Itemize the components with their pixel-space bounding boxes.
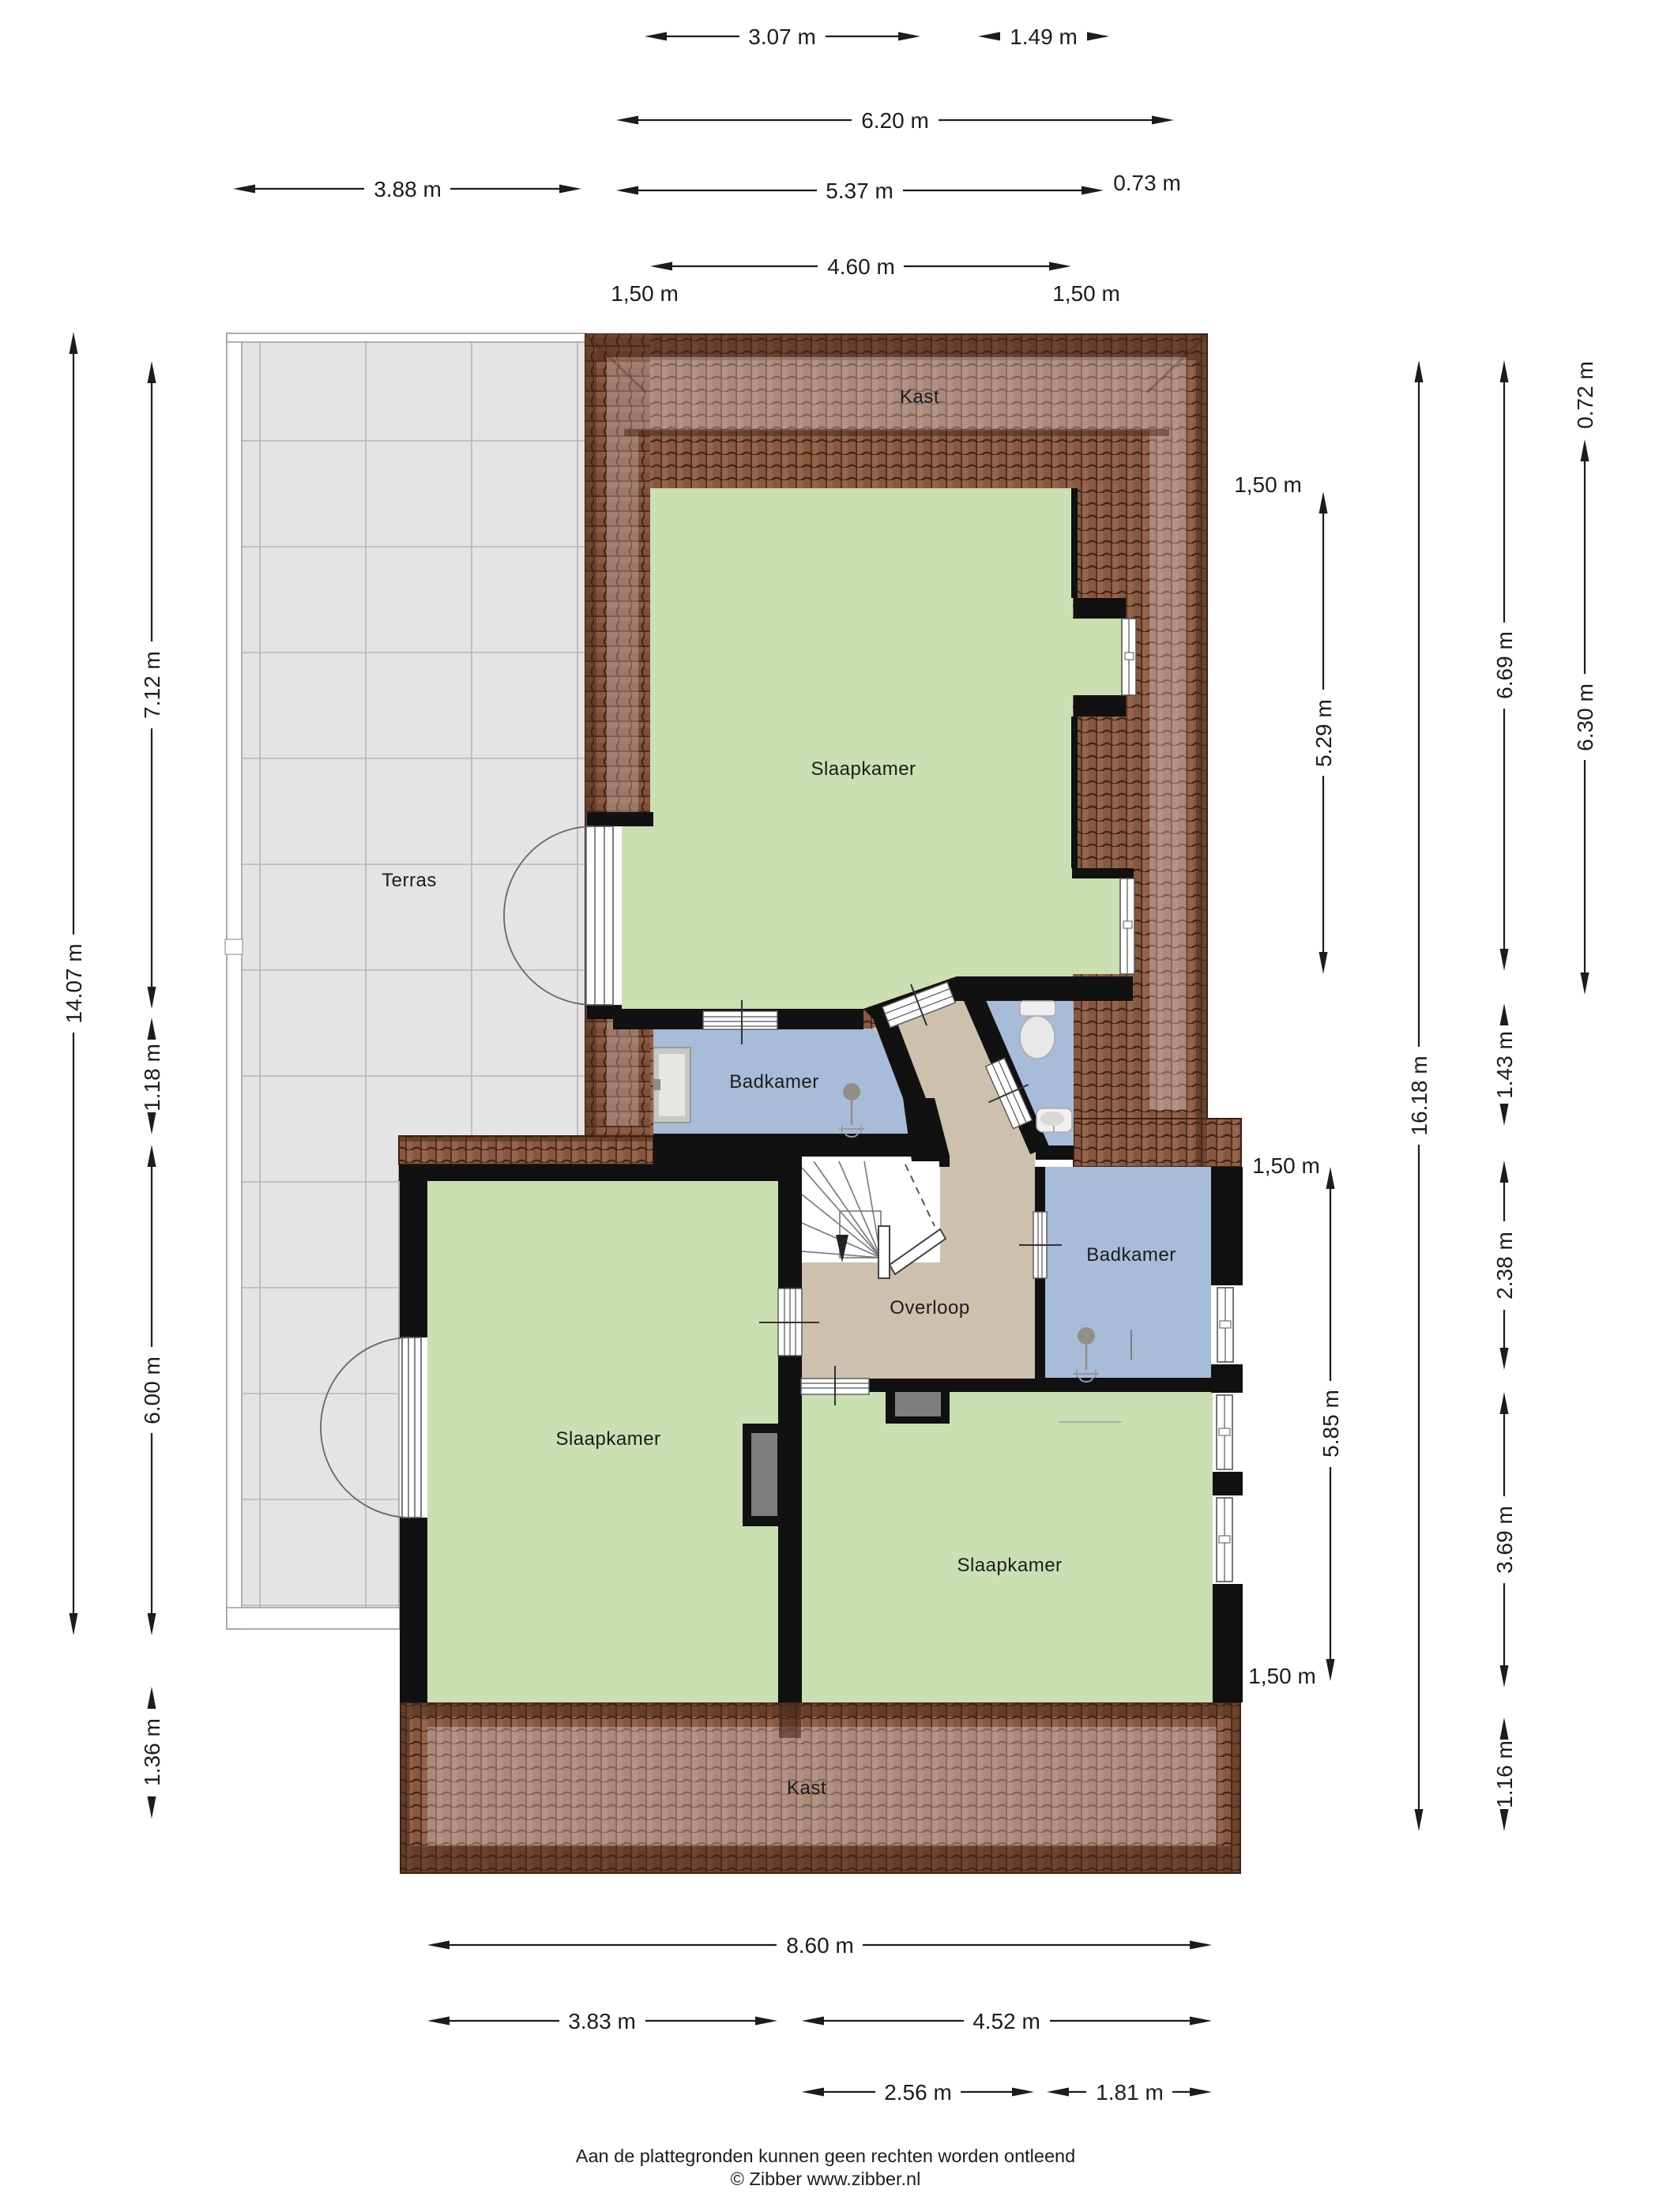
svg-text:Terras: Terras <box>382 870 437 891</box>
svg-text:Kast: Kast <box>787 1777 826 1799</box>
svg-text:1,50 m: 1,50 m <box>1248 1664 1316 1688</box>
svg-text:Badkamer: Badkamer <box>729 1071 818 1093</box>
svg-text:1.43 m: 1.43 m <box>1492 1031 1517 1099</box>
svg-text:2.38 m: 2.38 m <box>1492 1232 1517 1300</box>
svg-text:1,50 m: 1,50 m <box>1234 472 1302 497</box>
svg-text:0.72 m: 0.72 m <box>1573 361 1597 429</box>
svg-text:1,50 m: 1,50 m <box>611 281 679 306</box>
svg-text:4.60 m: 4.60 m <box>827 254 895 279</box>
svg-text:Slaapkamer: Slaapkamer <box>555 1428 660 1450</box>
svg-text:1.49 m: 1.49 m <box>1010 24 1078 49</box>
svg-text:3.69 m: 3.69 m <box>1492 1506 1517 1574</box>
svg-text:3.88 m: 3.88 m <box>374 177 442 201</box>
svg-text:1.16 m: 1.16 m <box>1492 1740 1517 1808</box>
svg-text:6.69 m: 6.69 m <box>1492 631 1517 699</box>
svg-text:Badkamer: Badkamer <box>1086 1244 1176 1266</box>
svg-text:6.20 m: 6.20 m <box>861 108 929 133</box>
svg-text:14.07 m: 14.07 m <box>62 943 86 1023</box>
svg-text:3.83 m: 3.83 m <box>568 2009 636 2033</box>
svg-text:6.30 m: 6.30 m <box>1573 683 1597 751</box>
svg-text:Overloop: Overloop <box>890 1297 969 1319</box>
svg-text:1.81 m: 1.81 m <box>1096 2080 1164 2105</box>
svg-text:Kast: Kast <box>900 386 939 408</box>
svg-text:© Zibber www.zibber.nl: © Zibber www.zibber.nl <box>731 2169 921 2189</box>
svg-text:7.12 m: 7.12 m <box>140 651 164 719</box>
svg-text:1,50 m: 1,50 m <box>1052 281 1120 306</box>
svg-text:2.56 m: 2.56 m <box>884 2080 952 2105</box>
svg-text:1,50 m: 1,50 m <box>1252 1153 1320 1178</box>
svg-text:3.07 m: 3.07 m <box>748 24 816 49</box>
svg-text:1.36 m: 1.36 m <box>140 1718 164 1786</box>
svg-text:4.52 m: 4.52 m <box>972 2009 1040 2033</box>
svg-text:16.18 m: 16.18 m <box>1407 1055 1431 1135</box>
svg-text:6.00 m: 6.00 m <box>140 1356 164 1424</box>
svg-text:1.18 m: 1.18 m <box>140 1044 164 1112</box>
svg-text:5.37 m: 5.37 m <box>826 179 893 203</box>
svg-text:Aan de plattegronden kunnen ge: Aan de plattegronden kunnen geen rechten… <box>576 2146 1075 2166</box>
svg-text:5.85 m: 5.85 m <box>1319 1390 1343 1458</box>
svg-text:Slaapkamer: Slaapkamer <box>811 758 916 780</box>
svg-text:Slaapkamer: Slaapkamer <box>957 1555 1062 1576</box>
svg-text:5.29 m: 5.29 m <box>1311 699 1336 767</box>
svg-text:8.60 m: 8.60 m <box>786 1933 854 1958</box>
svg-text:0.73 m: 0.73 m <box>1113 171 1181 195</box>
